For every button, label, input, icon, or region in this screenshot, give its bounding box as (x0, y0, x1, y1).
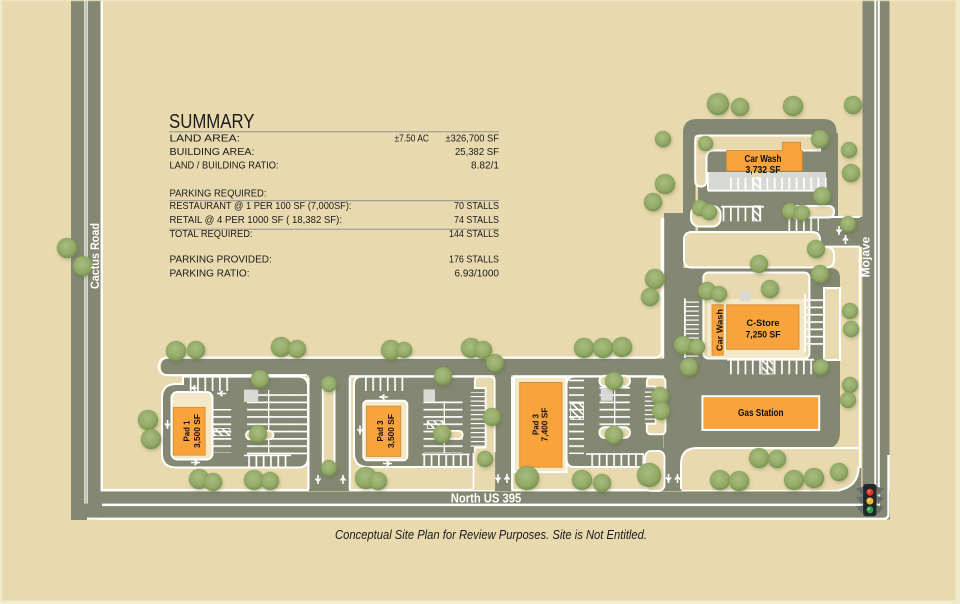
svg-text:3,732 SF: 3,732 SF (746, 165, 781, 176)
svg-text:PARKING RATIO:: PARKING RATIO: (170, 268, 250, 279)
svg-text:RESTAURANT @ 1 PER 100 SF (7,0: RESTAURANT @ 1 PER 100 SF (7,000SF): (170, 201, 352, 212)
svg-text:7,250 SF: 7,250 SF (746, 329, 781, 340)
svg-text:Car Wash: Car Wash (745, 154, 782, 165)
svg-text:Pad 3: Pad 3 (375, 420, 385, 441)
svg-text:70 STALLS: 70 STALLS (454, 201, 499, 212)
svg-text:RETAIL @ 4 PER 1000 SF ( 18,38: RETAIL @ 4 PER 1000 SF ( 18,382 SF): (170, 215, 343, 226)
svg-text:3,500 SF: 3,500 SF (386, 414, 396, 448)
svg-text:PARKING PROVIDED:: PARKING PROVIDED: (170, 254, 272, 265)
svg-text:Car Wash: Car Wash (714, 309, 724, 351)
svg-text:BUILDING AREA:: BUILDING AREA: (170, 147, 255, 158)
svg-text:LAND AREA:: LAND AREA: (170, 134, 241, 145)
svg-text:7,400 SF: 7,400 SF (540, 408, 550, 442)
svg-text:74 STALLS: 74 STALLS (454, 215, 499, 226)
svg-text:Mojave: Mojave (858, 236, 872, 277)
svg-text:8.82/1: 8.82/1 (471, 161, 499, 172)
svg-text:25,382 SF: 25,382 SF (455, 147, 499, 158)
svg-text:LAND / BUILDING RATIO:: LAND / BUILDING RATIO: (170, 161, 279, 172)
svg-text:±326,700 SF: ±326,700 SF (446, 134, 500, 145)
svg-text:PARKING REQUIRED:: PARKING REQUIRED: (170, 188, 267, 199)
svg-text:Cactus Road: Cactus Road (88, 223, 102, 289)
svg-text:Pad 1: Pad 1 (182, 420, 192, 441)
svg-text:SUMMARY: SUMMARY (169, 110, 255, 133)
svg-text:Gas Station: Gas Station (738, 407, 784, 419)
svg-text:±7.50 AC: ±7.50 AC (395, 134, 430, 145)
svg-text:6.93/1000: 6.93/1000 (455, 268, 500, 279)
svg-text:C-Store: C-Store (747, 318, 780, 329)
svg-text:176 STALLS: 176 STALLS (449, 254, 499, 265)
svg-text:3,500 SF: 3,500 SF (192, 414, 202, 448)
svg-text:144 STALLS: 144 STALLS (449, 229, 499, 240)
svg-text:North US 395: North US 395 (451, 492, 522, 506)
svg-text:TOTAL REQUIRED:: TOTAL REQUIRED: (170, 229, 253, 240)
svg-text:Conceptual Site Plan for Revie: Conceptual Site Plan for Review Purposes… (335, 527, 647, 542)
